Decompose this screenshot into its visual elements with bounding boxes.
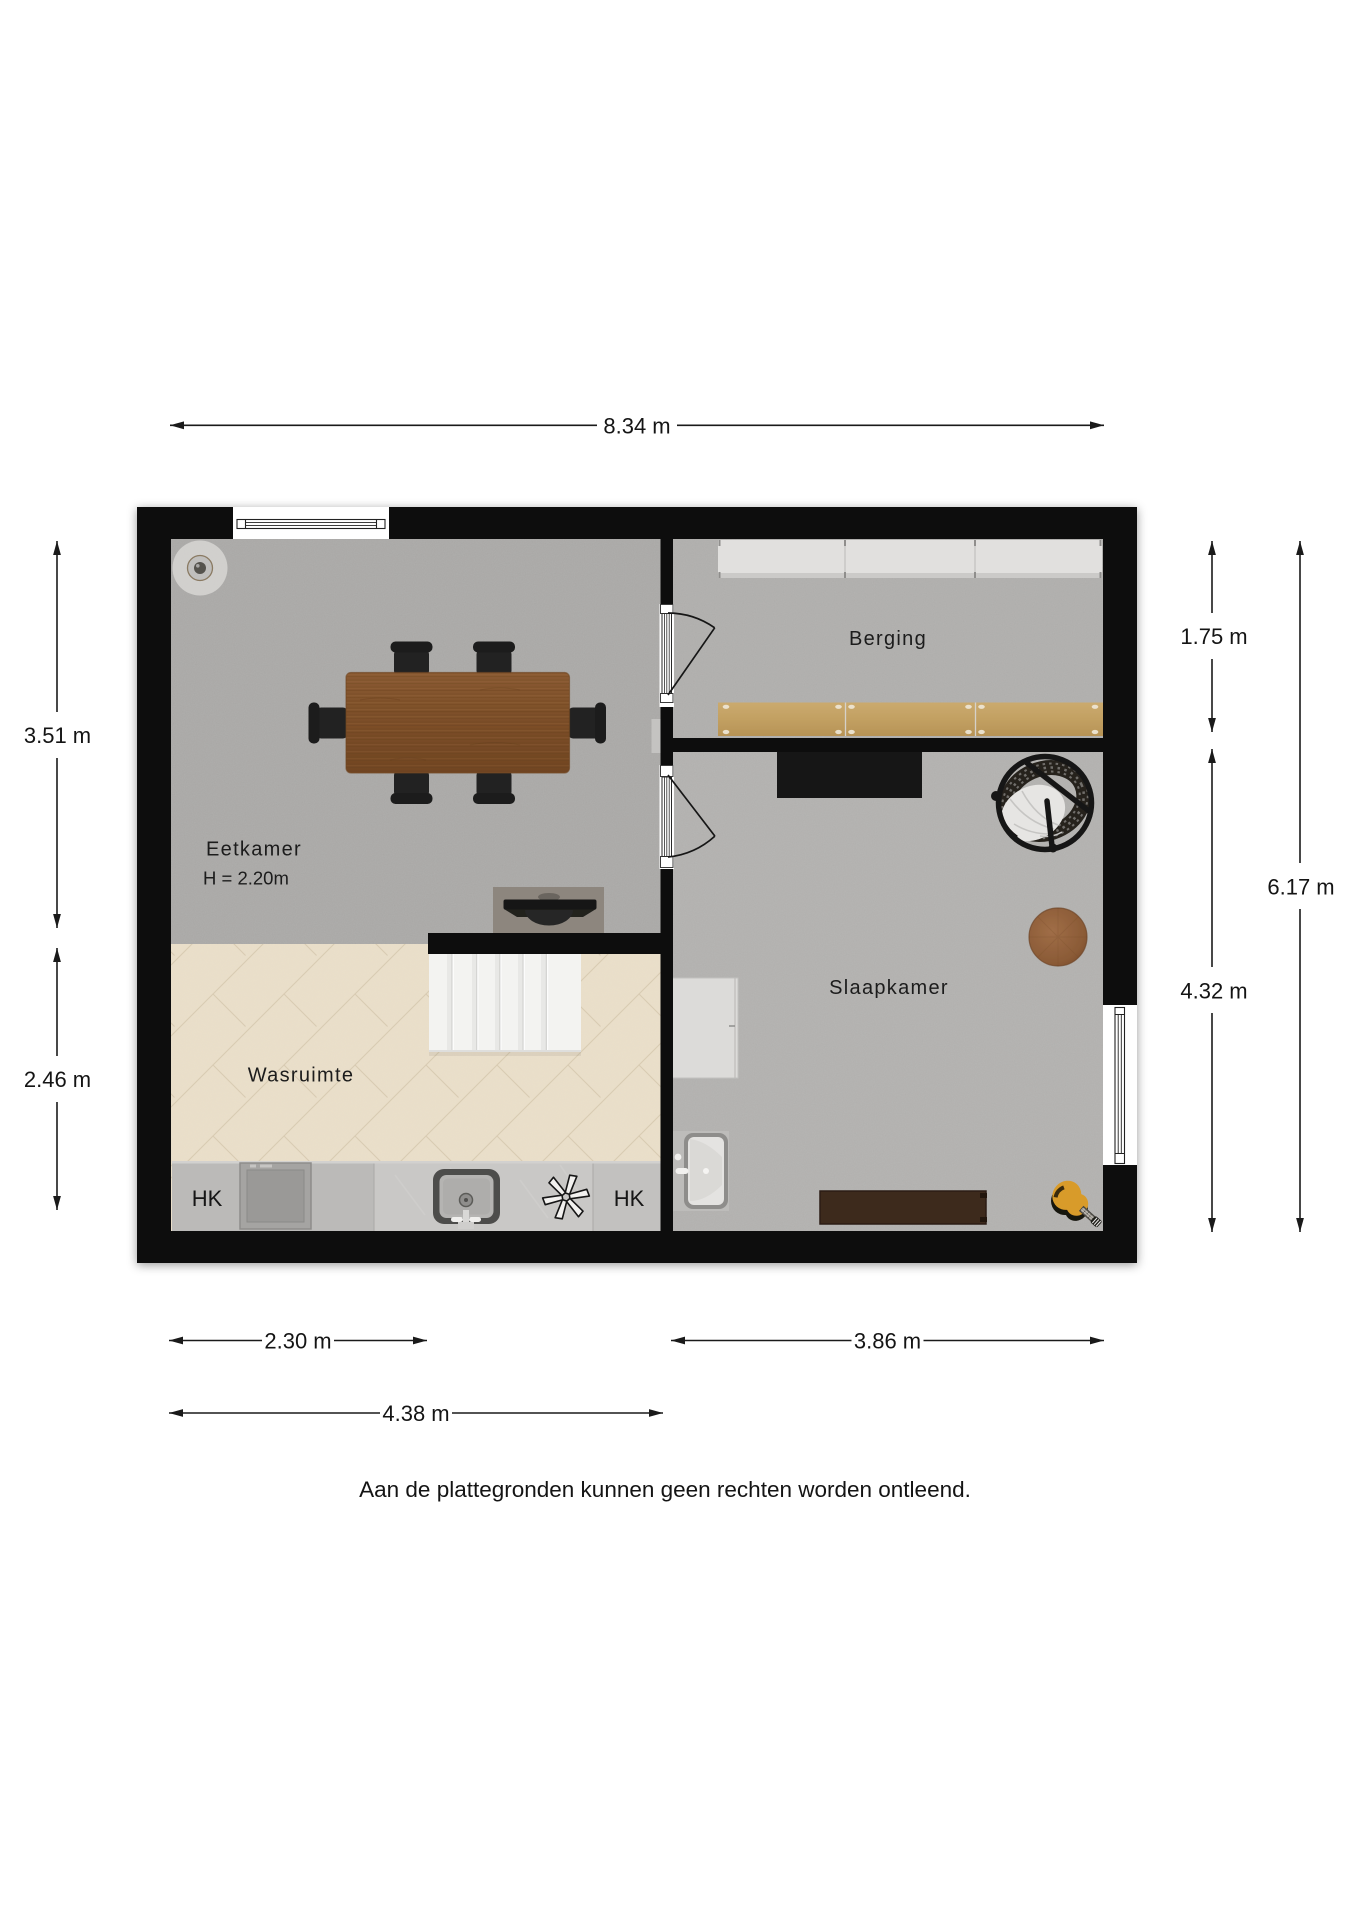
svg-text:4.38 m: 4.38 m — [382, 1401, 449, 1426]
svg-text:Eetkamer: Eetkamer — [206, 839, 302, 861]
svg-text:HK: HK — [192, 1186, 223, 1211]
svg-text:2.46 m: 2.46 m — [24, 1067, 91, 1092]
svg-text:4.32 m: 4.32 m — [1180, 979, 1247, 1004]
svg-text:1.75 m: 1.75 m — [1180, 624, 1247, 649]
svg-text:HK: HK — [614, 1186, 645, 1211]
svg-text:6.17 m: 6.17 m — [1267, 875, 1334, 900]
svg-text:3.86 m: 3.86 m — [854, 1329, 921, 1354]
svg-text:Berging: Berging — [849, 628, 927, 650]
svg-text:8.34 m: 8.34 m — [603, 413, 670, 438]
svg-text:Aan de plattegronden kunnen ge: Aan de plattegronden kunnen geen rechten… — [359, 1477, 971, 1502]
svg-text:2.30 m: 2.30 m — [264, 1329, 331, 1354]
svg-text:H = 2.20m: H = 2.20m — [203, 868, 289, 889]
svg-text:Wasruimte: Wasruimte — [248, 1065, 355, 1087]
svg-text:3.51 m: 3.51 m — [24, 723, 91, 748]
svg-text:Slaapkamer: Slaapkamer — [829, 977, 949, 999]
